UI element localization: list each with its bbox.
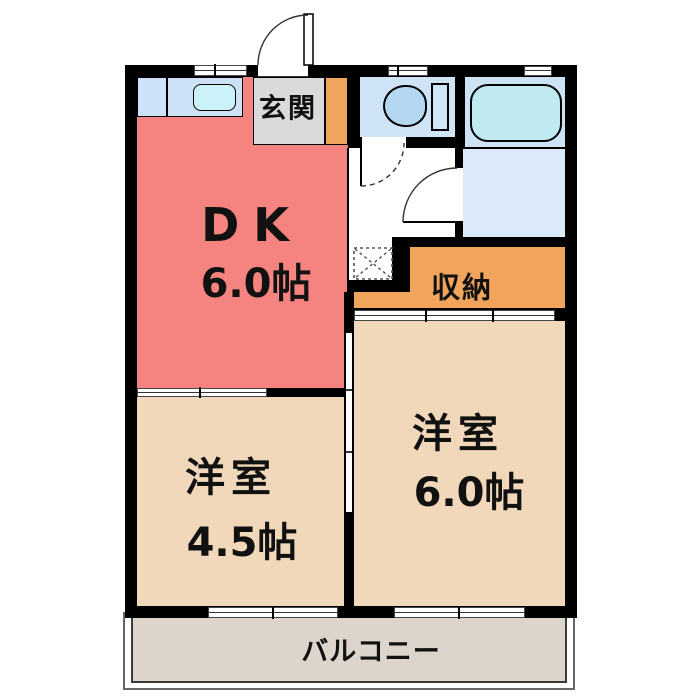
toilet-door-gap [362, 137, 406, 148]
toilet-window-icon [388, 66, 428, 76]
western-room-45-size: 4.5帖 [187, 523, 298, 563]
wall-segment [392, 237, 410, 292]
balcony-label: バルコニー [301, 639, 440, 666]
wall-segment [347, 280, 392, 292]
closet-sliding-door-icon [354, 310, 555, 321]
wall-segment [344, 512, 354, 606]
wall-top [125, 65, 577, 77]
entrance-step [325, 77, 348, 145]
wall-segment [555, 310, 565, 321]
bathtub-icon [470, 84, 562, 142]
washroom-door-gap [455, 168, 463, 221]
wall-segment [267, 388, 345, 397]
wall-segment [406, 237, 565, 247]
kitchen-counter-divider [166, 78, 168, 116]
wall-left [125, 65, 137, 618]
kitchen-sink-icon [193, 84, 236, 111]
storage-label: 収納 [431, 274, 493, 303]
floor-plan: DK 6.0帖 洋室 4.5帖 洋室 6.0帖 収納 玄関 バルコニー [0, 0, 700, 700]
wall-segment [406, 137, 455, 148]
hallway-area [349, 142, 455, 238]
bath-window-icon [524, 66, 552, 76]
storage-area-extension [354, 292, 410, 308]
wall-segment [455, 148, 463, 168]
wall-segment [344, 292, 354, 333]
western-room-60-label: 洋室 [412, 414, 504, 454]
entrance-door-swing-icon [258, 14, 313, 65]
sliding-door-dk-45-icon [137, 388, 267, 397]
kitchen-window-icon [194, 65, 247, 76]
dk-room-size: 6.0帖 [201, 264, 312, 304]
western-room-45-label: 洋室 [185, 458, 277, 498]
wall-segment [347, 148, 349, 280]
balcony-window-60-icon [394, 607, 525, 618]
wall-segment [455, 77, 465, 149]
hallway-area [349, 238, 392, 280]
toilet-icon [383, 85, 427, 127]
washroom-area [463, 149, 565, 237]
western-room-45-area [137, 397, 345, 606]
wall-right [565, 65, 577, 618]
toilet-tank-icon [431, 83, 449, 131]
dk-room-label: DK [201, 202, 303, 248]
western-room-60-area [354, 321, 565, 606]
entrance-opening [258, 65, 308, 77]
fusuma-sliding-door-icon [344, 333, 354, 512]
wall-segment [348, 137, 362, 148]
entrance-label: 玄関 [259, 96, 317, 123]
western-room-60-size: 6.0帖 [414, 473, 525, 513]
wall-segment [455, 221, 463, 237]
balcony-window-45-icon [208, 607, 338, 618]
